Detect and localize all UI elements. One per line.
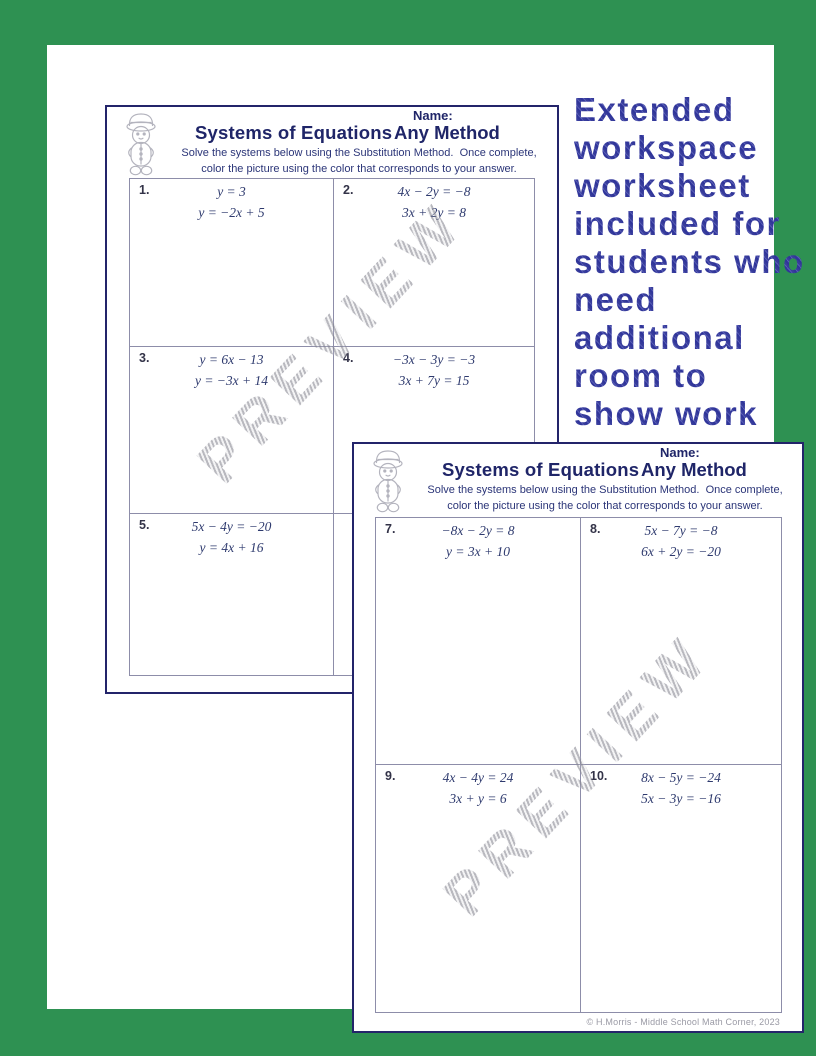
problem-equations: 5x − 7y = −8 6x + 2y = −20 [581,518,781,562]
problem-number: 5. [139,518,149,532]
marketing-note-line: need [574,281,816,319]
marketing-note-line: worksheet [574,167,816,205]
problem-cell-7: 7. −8x − 2y = 8 y = 3x + 10 [376,518,581,765]
problem-number: 8. [590,522,600,536]
problem-number: 1. [139,183,149,197]
instructions-line-2: color the picture using the color that c… [412,499,798,515]
problem-number: 3. [139,351,149,365]
marketing-note-line: included for [574,205,816,243]
problems-table: 7. −8x − 2y = 8 y = 3x + 10 8. 5x − 7y =… [375,517,782,1013]
marketing-note-line: room to [574,357,816,395]
problem-cell-1: 1. y = 3 y = −2x + 5 [130,179,334,347]
equation-2: y = 4x + 16 [130,537,333,558]
equation-1: −8x − 2y = 8 [376,520,580,541]
worksheet-instructions: Solve the systems below using the Substi… [165,146,553,177]
equation-2: 6x + 2y = −20 [581,541,781,562]
marketing-note-line: students who [574,243,816,281]
instructions-line-1: Solve the systems below using the Substi… [412,483,798,499]
paper-page: Extended workspace worksheet included fo… [47,45,774,1009]
problem-equations: 8x − 5y = −24 5x − 3y = −16 [581,765,781,809]
equation-2: 3x + y = 6 [376,788,580,809]
equation-2: y = −2x + 5 [130,202,333,223]
preview-background: Extended workspace worksheet included fo… [0,0,816,1056]
worksheet-title: Systems of Equations [195,122,392,144]
equation-2: 5x − 3y = −16 [581,788,781,809]
marketing-note-line: workspace [574,129,816,167]
equation-1: 4x − 4y = 24 [376,767,580,788]
problem-number: 7. [385,522,395,536]
problem-equations: y = 6x − 13 y = −3x + 14 [130,347,333,391]
equation-2: 3x + 7y = 15 [334,370,534,391]
problem-cell-5: 5. 5x − 4y = −20 y = 4x + 16 [130,514,334,675]
equation-1: y = 3 [130,181,333,202]
problem-equations: −8x − 2y = 8 y = 3x + 10 [376,518,580,562]
problem-equations: 4x − 4y = 24 3x + y = 6 [376,765,580,809]
copyright-footer: © H.Morris - Middle School Math Corner, … [586,1017,780,1027]
equation-1: 5x − 7y = −8 [581,520,781,541]
equation-2: y = 3x + 10 [376,541,580,562]
worksheet-method-subtitle: Any Method [641,459,747,481]
name-field-label: Name: [413,108,453,123]
marketing-note-line: show work [574,395,816,433]
equation-1: 8x − 5y = −24 [581,767,781,788]
equation-1: 5x − 4y = −20 [130,516,333,537]
problem-equations: 5x − 4y = −20 y = 4x + 16 [130,514,333,558]
equation-2: y = −3x + 14 [130,370,333,391]
problem-cell-10: 10. 8x − 5y = −24 5x − 3y = −16 [581,765,781,1012]
worksheet-page-2: Name: Systems of Equations Any Method So… [352,442,804,1033]
name-field-label: Name: [660,445,700,460]
marketing-note: Extended workspace worksheet included fo… [574,91,816,433]
equation-2: 3x + 2y = 8 [334,202,534,223]
mascot-character-icon [117,110,165,178]
worksheet-instructions: Solve the systems below using the Substi… [412,483,798,514]
equation-1: y = 6x − 13 [130,349,333,370]
problem-cell-8: 8. 5x − 7y = −8 6x + 2y = −20 [581,518,781,765]
equation-1: 4x − 2y = −8 [334,181,534,202]
equation-1: −3x − 3y = −3 [334,349,534,370]
instructions-line-1: Solve the systems below using the Substi… [165,146,553,162]
problem-cell-2: 2. 4x − 2y = −8 3x + 2y = 8 [334,179,534,347]
problem-equations: y = 3 y = −2x + 5 [130,179,333,223]
problem-equations: 4x − 2y = −8 3x + 2y = 8 [334,179,534,223]
problem-number: 9. [385,769,395,783]
worksheet-title: Systems of Equations [442,459,639,481]
mascot-character-icon [364,447,412,515]
problem-cell-9: 9. 4x − 4y = 24 3x + y = 6 [376,765,581,1012]
problem-cell-3: 3. y = 6x − 13 y = −3x + 14 [130,347,334,514]
marketing-note-line: Extended [574,91,816,129]
worksheet-method-subtitle: Any Method [394,122,500,144]
problem-number: 10. [590,769,607,783]
marketing-note-line: additional [574,319,816,357]
problem-equations: −3x − 3y = −3 3x + 7y = 15 [334,347,534,391]
problem-number: 4. [343,351,353,365]
instructions-line-2: color the picture using the color that c… [165,162,553,178]
problem-number: 2. [343,183,353,197]
